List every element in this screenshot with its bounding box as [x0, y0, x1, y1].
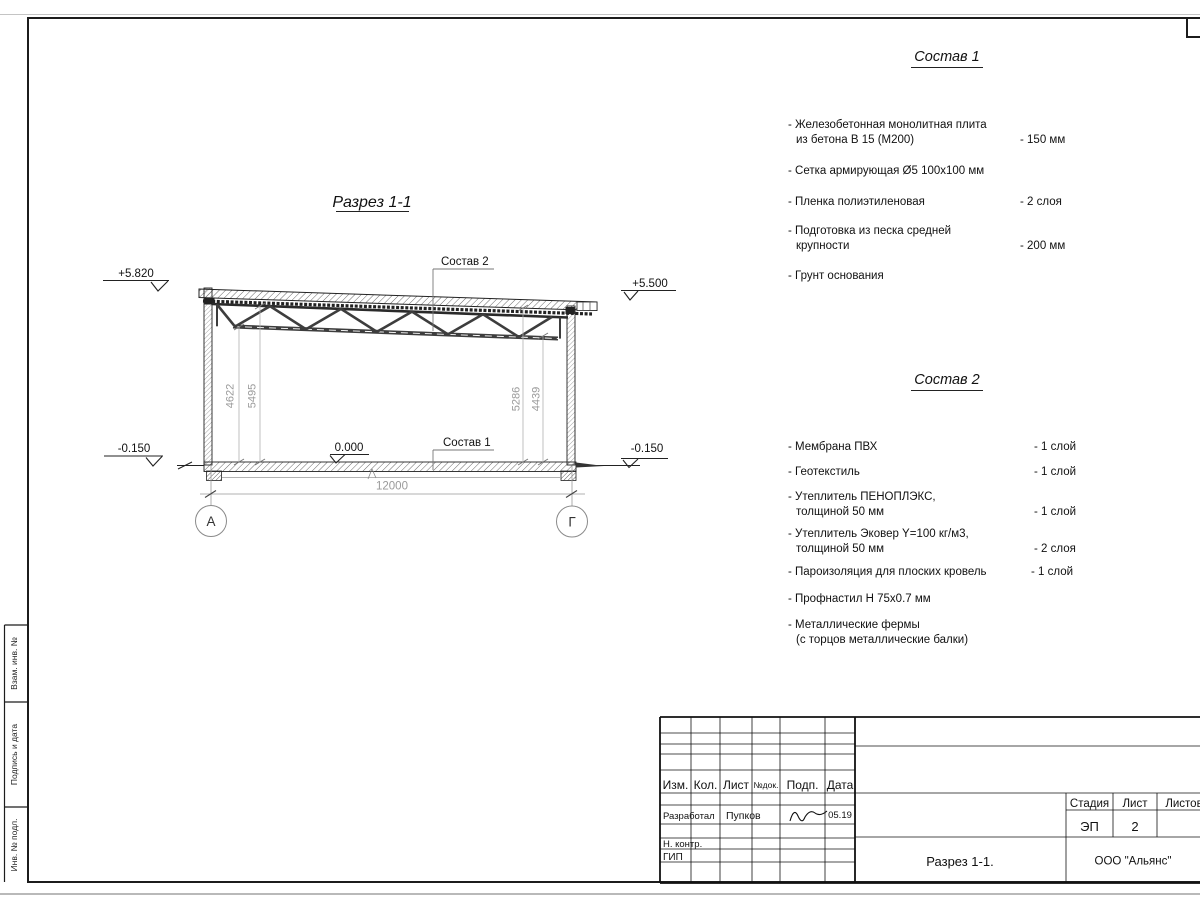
- material-item: - Профнастил Н 75х0.7 мм: [788, 592, 931, 606]
- company-name: ООО "Альянс": [1095, 856, 1172, 868]
- right-foundation: [561, 471, 576, 481]
- ncontr-label: Н. контр.: [663, 839, 702, 850]
- elevation-tick: [146, 457, 162, 467]
- material-item-value: - 200 мм: [1020, 239, 1065, 253]
- material-item: - Утеплитель Эковер Y=100 кг/м3,: [788, 527, 969, 541]
- material-item-line2: толщиной 50 мм: [788, 505, 884, 519]
- sostav2-heading: Состав 2: [788, 373, 1106, 387]
- elevation-ground-left: -0.150: [118, 443, 151, 455]
- margin-label-vzam: Взам. инв. №: [9, 637, 19, 690]
- elevation-ground-right: -0.150: [631, 443, 664, 455]
- leader-label-sostav2: Состав 2: [441, 256, 489, 268]
- drawing-sheet: Взам. инв. № Подпись и дата Инв. № подл.…: [0, 0, 1200, 900]
- dim-left-inner: 4622: [225, 384, 237, 408]
- leader-label-sostav1: Состав 1: [443, 437, 491, 449]
- material-item-value: - 1 слой: [1031, 565, 1073, 579]
- elevation-tick: [151, 281, 168, 291]
- material-item-value: - 1 слой: [1034, 440, 1076, 454]
- material-item: - Железобетонная монолитная плита: [788, 118, 987, 132]
- stage-label: Стадия: [1070, 798, 1109, 810]
- sheet-edge-bottom: [0, 893, 1200, 895]
- doc-title: Разрез 1-1.: [926, 854, 993, 869]
- material-item-line2: из бетона В 15 (М200): [788, 133, 914, 147]
- elevation-top-left: +5.820: [118, 268, 154, 280]
- col-kol: Кол.: [694, 778, 718, 792]
- material-item: - Утеплитель ПЕНОПЛЭКС,: [788, 490, 936, 504]
- frame-border-top: [27, 17, 1200, 19]
- margin-stamp-column: Взам. инв. № Подпись и дата Инв. № подл.: [0, 615, 32, 890]
- left-foundation: [207, 471, 222, 481]
- margin-label-inv-podl: Инв. № подл.: [9, 819, 19, 872]
- developed-date: 05.19: [828, 810, 852, 821]
- margin-label-podp-data: Подпись и дата: [9, 724, 19, 785]
- floor-slab: [177, 462, 640, 481]
- grid-letter-g: Г: [568, 515, 576, 530]
- elevation-tick: [623, 459, 638, 468]
- gip-label: ГИП: [663, 852, 683, 863]
- material-item: - Мембрана ПВХ: [788, 440, 877, 454]
- stage-value: ЭП: [1080, 819, 1099, 834]
- material-item-line2: крупности: [788, 239, 849, 253]
- material-item-value: - 150 мм: [1020, 133, 1065, 147]
- elevation-zero: 0.000: [335, 442, 364, 454]
- material-item: - Геотекстиль: [788, 465, 860, 479]
- material-item-value: - 2 слоя: [1020, 195, 1062, 209]
- view-title: Разрез 1-1: [332, 194, 411, 211]
- material-item: - Грунт основания: [788, 269, 884, 283]
- right-bearing-pad: [566, 307, 575, 314]
- roof-end-beam: [577, 302, 597, 311]
- sostav1-heading: Состав 1: [788, 50, 1106, 64]
- sheet-label: Лист: [1123, 798, 1149, 810]
- material-list-sostav1: Состав 1 - Железобетонная монолитная пли…: [788, 50, 1106, 300]
- developed-label: Разработал: [663, 811, 715, 822]
- material-item: - Пароизоляция для плоских кровель: [788, 565, 987, 579]
- col-list: Лист: [723, 778, 750, 792]
- sheets-label: Листов: [1165, 798, 1200, 810]
- material-item: - Пленка полиэтиленовая: [788, 195, 925, 209]
- material-item-value: - 1 слой: [1034, 505, 1076, 519]
- material-list-sostav2: Состав 2 - Мембрана ПВХ - 1 слой - Геоте…: [788, 368, 1106, 658]
- signature-scribble: [790, 811, 827, 821]
- material-item: - Подготовка из песка средней: [788, 224, 951, 238]
- dim-left-outer: 5495: [247, 384, 259, 408]
- left-wall-panel: [204, 288, 212, 465]
- leaders: Состав 2 Состав 1: [433, 256, 494, 470]
- col-ndok: №док.: [754, 780, 779, 790]
- developed-name: Пупков: [726, 810, 761, 822]
- dim-right-inner: 5286: [511, 387, 523, 411]
- span-dimension-text: 12000: [376, 481, 408, 493]
- sheet-value: 2: [1131, 819, 1138, 834]
- grid-axes: 12000 А Г: [196, 466, 588, 537]
- frame-corner-notch: [1186, 36, 1200, 38]
- sheet-edge-top: [0, 14, 1200, 15]
- col-izm: Изм.: [663, 778, 689, 792]
- col-podp: Подп.: [787, 778, 819, 792]
- col-data: Дата: [827, 778, 854, 792]
- dim-right-outer: 4439: [531, 387, 543, 411]
- material-item-value: - 1 слой: [1034, 465, 1076, 479]
- section-drawing: Разрез 1-1: [80, 185, 705, 545]
- elevation-tick: [624, 291, 638, 300]
- elevation-top-right: +5.500: [632, 278, 668, 290]
- material-item: - Сетка армирующая Ø5 100х100 мм: [788, 164, 984, 178]
- material-item: - Металлические фермы: [788, 618, 920, 632]
- right-wall-panel: [567, 306, 575, 465]
- material-item-value: - 2 слоя: [1034, 542, 1076, 556]
- material-item-line2: (с торцов металлические балки): [788, 633, 968, 647]
- frame-corner-notch: [1186, 18, 1188, 37]
- title-block: Изм. Кол. Лист №док. Подп. Дата Разработ…: [659, 716, 1200, 884]
- steel-truss: [212, 304, 568, 339]
- material-item-line2: толщиной 50 мм: [788, 542, 884, 556]
- grid-letter-a: А: [206, 514, 215, 529]
